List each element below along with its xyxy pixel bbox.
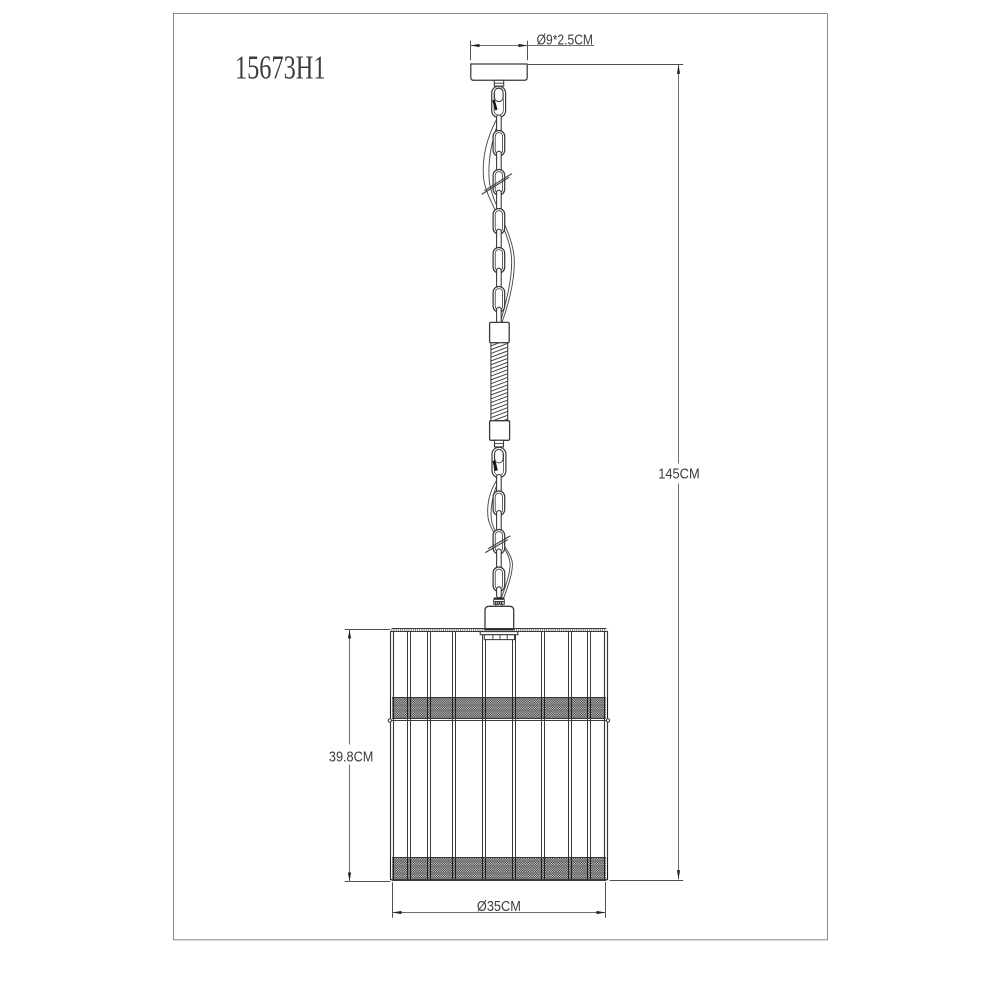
svg-text:Ø9*2.5CM: Ø9*2.5CM — [537, 31, 593, 48]
svg-text:39.8CM: 39.8CM — [329, 748, 374, 765]
svg-text:145CM: 145CM — [658, 466, 700, 482]
svg-text:15673H1: 15673H1 — [235, 50, 326, 87]
svg-text:Ø35CM: Ø35CM — [477, 898, 521, 915]
